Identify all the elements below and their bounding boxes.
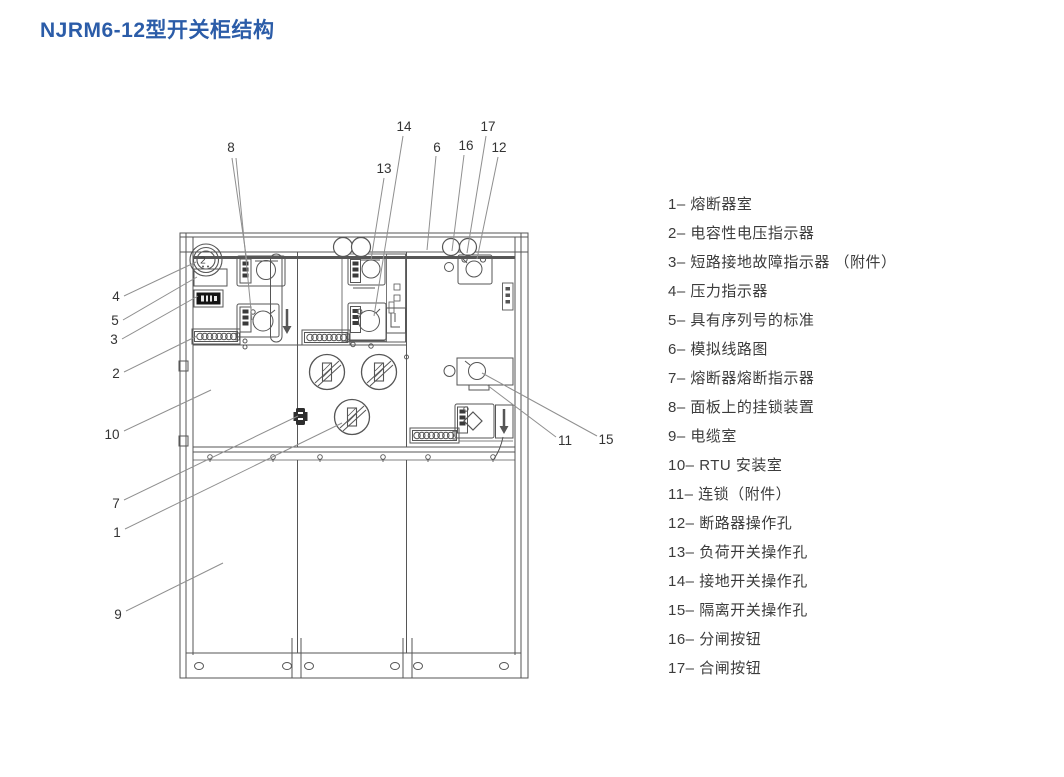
legend-item-6: 6– 模拟线路图 xyxy=(668,335,897,364)
left-upper-operation-hole xyxy=(237,256,285,286)
callout-12: 12 xyxy=(491,140,506,155)
legend-item-5: 5– 具有序列号的标准 xyxy=(668,306,897,335)
legend-item-3: 3– 短路接地故障指示器 （附件） xyxy=(668,248,897,277)
legend-item-1: 1– 熔断器室 xyxy=(668,190,897,219)
callout-7: 7 xyxy=(112,496,120,511)
isolator-operation-hole xyxy=(444,358,513,390)
door-latch xyxy=(294,408,308,425)
gauge-glyph: 2 xyxy=(200,256,206,267)
fuse-window-3 xyxy=(335,400,370,435)
legend-item-13: 13– 负荷开关操作孔 xyxy=(668,538,897,567)
legend-item-9: 9– 电缆室 xyxy=(668,422,897,451)
fuse-window-1 xyxy=(310,355,345,390)
legend-item-4: 4– 压力指示器 xyxy=(668,277,897,306)
callout-6: 6 xyxy=(433,140,441,155)
legend-item-8: 8– 面板上的挂锁装置 xyxy=(668,393,897,422)
legend-item-14: 14– 接地开关操作孔 xyxy=(668,567,897,596)
legend-item-17: 17– 合闸按钮 xyxy=(668,654,897,683)
left-slot-channel xyxy=(271,254,283,342)
right-top-buttons xyxy=(443,239,477,256)
switchgear-structure-diagram: 2 xyxy=(90,105,650,705)
legend-item-16: 16– 分闸按钮 xyxy=(668,625,897,654)
callout-13: 13 xyxy=(376,161,391,176)
callout-1: 1 xyxy=(113,525,121,540)
callout-9: 9 xyxy=(114,607,122,622)
callout-16: 16 xyxy=(458,138,473,153)
middle-module-outline xyxy=(342,254,406,342)
callout-14: 14 xyxy=(396,119,412,134)
left-lower-operation-hole xyxy=(237,304,279,337)
callout-11: 11 xyxy=(558,433,572,448)
page-title: NJRM6-12型开关柜结构 xyxy=(40,14,275,44)
legend-list: 1– 熔断器室 2– 电容性电压指示器 3– 短路接地故障指示器 （附件） 4–… xyxy=(668,190,897,683)
cable-compartment-doors xyxy=(186,460,521,678)
earthing-switch-operation-hole xyxy=(348,303,406,348)
fault-indicator-display xyxy=(194,290,223,307)
capacitive-voltage-indicator-strip xyxy=(192,329,247,349)
callout-2: 2 xyxy=(112,366,120,381)
callout-4: 4 xyxy=(112,289,120,304)
legend-item-7: 7– 熔断器熔断指示器 xyxy=(668,364,897,393)
callout-17: 17 xyxy=(480,119,495,134)
callout-10: 10 xyxy=(104,427,119,442)
callout-3: 3 xyxy=(110,332,118,347)
legend-item-2: 2– 电容性电压指示器 xyxy=(668,219,897,248)
breaker-operation-hole xyxy=(445,255,493,284)
callout-5: 5 xyxy=(111,313,119,328)
callout-8: 8 xyxy=(227,140,235,155)
middle-terminal-strip xyxy=(302,330,350,345)
callout-15: 15 xyxy=(598,432,613,447)
divider-screws xyxy=(208,455,496,462)
legend-item-12: 12– 断路器操作孔 xyxy=(668,509,897,538)
legend-item-15: 15– 隔离开关操作孔 xyxy=(668,596,897,625)
fuse-window-2 xyxy=(362,355,397,390)
right-terminal-strip xyxy=(410,428,459,443)
left-down-arrow xyxy=(283,309,292,334)
legend-item-11: 11– 连锁（附件） xyxy=(668,480,897,509)
cabinet-frame xyxy=(179,233,528,678)
legend-item-10: 10– RTU 安装室 xyxy=(668,451,897,480)
interlock-operation-hole xyxy=(455,404,494,438)
hinge-strip xyxy=(405,283,514,363)
